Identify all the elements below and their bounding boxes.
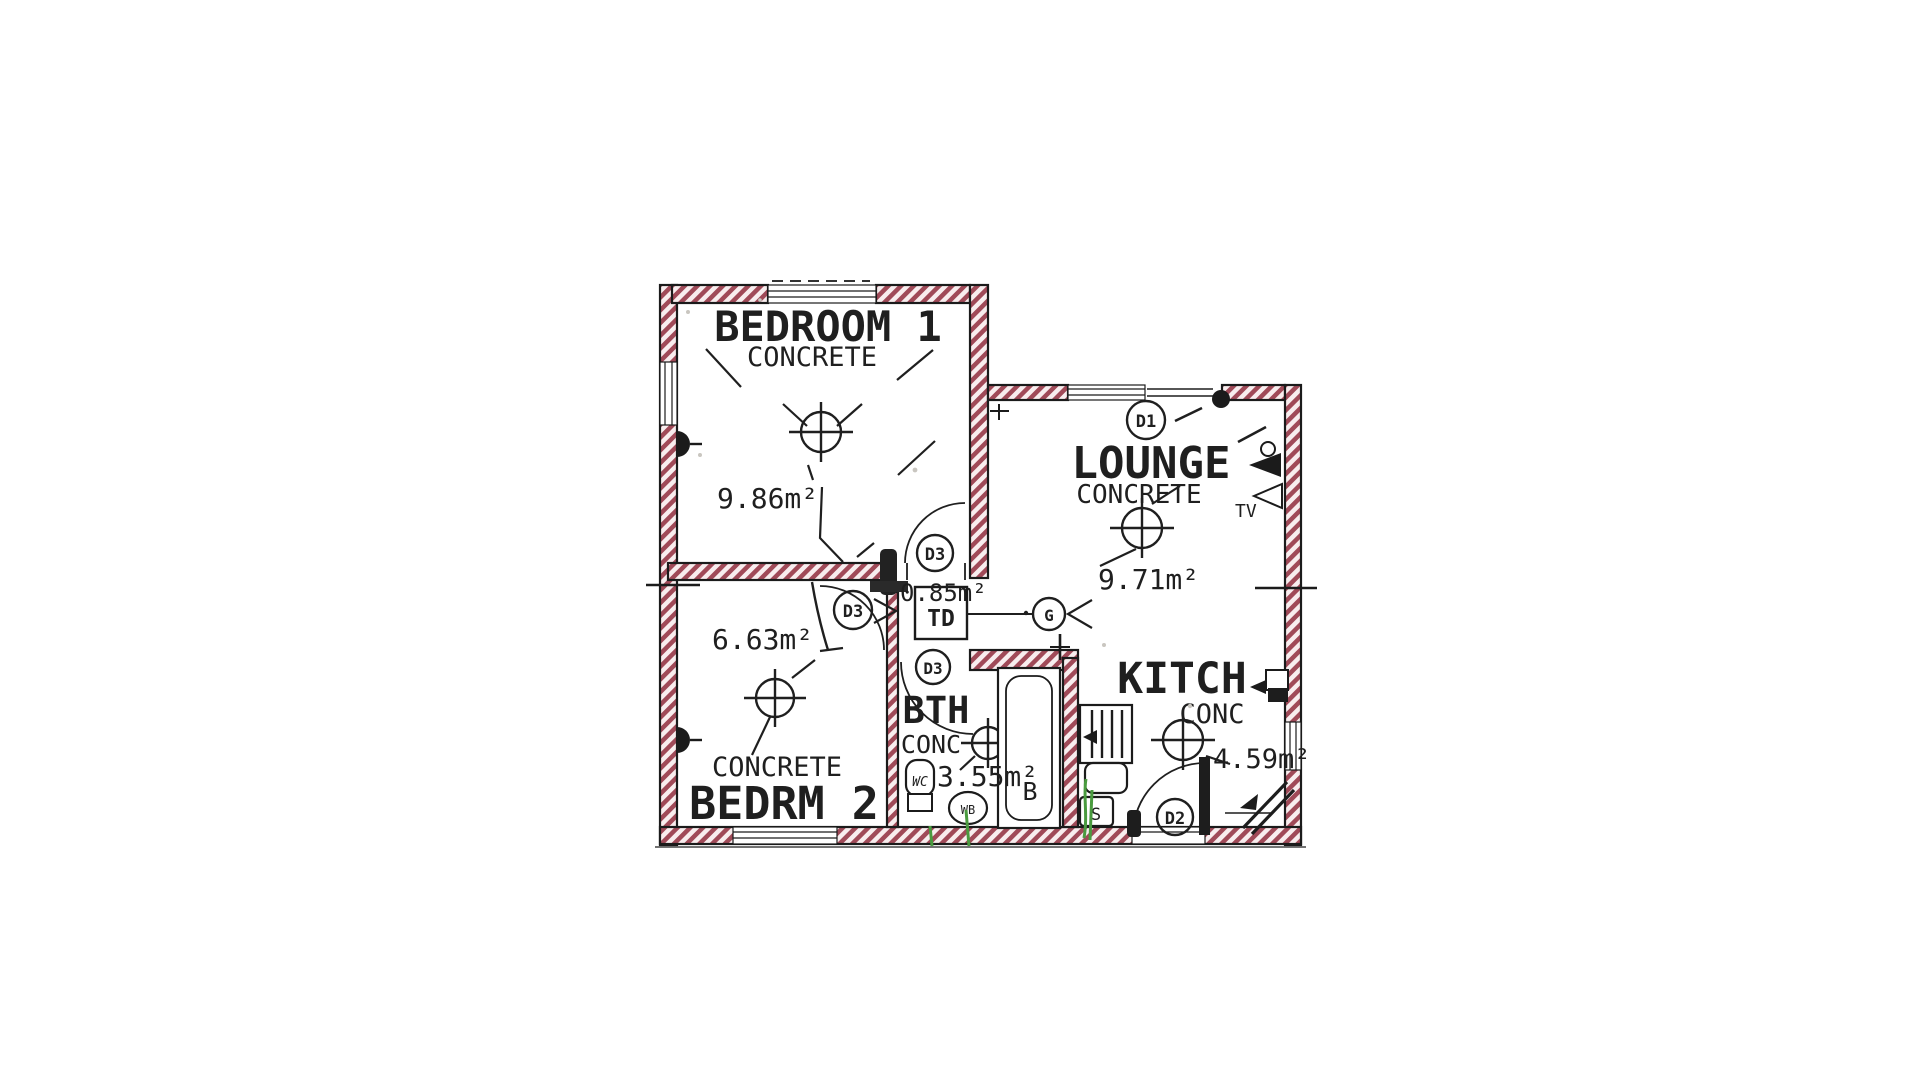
switch-line-bedroom2 xyxy=(752,717,770,755)
floor-plan-drawing: D1 D3 D3 D3 D2 G TD xyxy=(0,0,1920,1080)
room-label-bedroom2: BEDRM 2 xyxy=(689,777,879,830)
switch-tag-g: G xyxy=(1033,598,1092,630)
tv-point: TV xyxy=(1235,484,1282,522)
leader-bedroom1-v1 xyxy=(783,404,807,426)
leader-bedroom1-v2 xyxy=(837,404,862,426)
floor-label-lounge: CONCRETE xyxy=(1076,480,1201,510)
kitchen-basin xyxy=(1085,763,1127,793)
td-line-dot xyxy=(1024,611,1028,615)
kitchen-wall-unit xyxy=(1250,670,1288,702)
wash-basin-label: WB xyxy=(961,803,975,817)
door-d2-jamb xyxy=(1127,810,1141,837)
switch-line-bedroom1-dash xyxy=(808,465,813,480)
floor-label-kitchen: CONC xyxy=(1179,699,1244,730)
window-lounge-top xyxy=(1068,385,1145,400)
window-bedroom1-left xyxy=(660,362,677,425)
leader-bedroom1-right xyxy=(897,350,933,380)
stove-unit xyxy=(1080,705,1132,763)
switch-tag-g-label: G xyxy=(1044,606,1054,625)
lounge-wall-fixtures: TV xyxy=(1235,442,1282,522)
scanned-floor-plan-page: D1 D3 D3 D3 D2 G TD xyxy=(0,0,1920,1080)
leader-bedroom2-dash1 xyxy=(792,660,815,678)
area-label-bathroom: 3.55m² xyxy=(937,760,1038,793)
door-tag-d3-bedroom1: D3 xyxy=(917,535,953,571)
door-tag-d2-label: D2 xyxy=(1165,809,1185,829)
socket-bedroom2 xyxy=(677,727,690,753)
bathtub: B xyxy=(998,668,1060,828)
wall-bedroom2-right xyxy=(887,592,898,827)
switch-tag-g-pointer xyxy=(1068,600,1092,628)
wall-lounge-top-right xyxy=(1222,385,1285,400)
green-mark-bath-door xyxy=(930,826,932,846)
door-tag-d1: D1 xyxy=(1127,401,1165,439)
switch-line-bedroom1-tick xyxy=(857,543,874,557)
room-label-bathroom: BTH xyxy=(903,689,970,732)
room-label-kitchen: KITCH xyxy=(1117,654,1246,704)
door-tag-d3-bedroom2-label: D3 xyxy=(843,602,863,622)
wall-right xyxy=(1285,385,1301,845)
door-d1-hinge xyxy=(1212,390,1230,408)
wall-step-bedroom1-lounge xyxy=(970,285,988,578)
area-label-lounge: 9.71m² xyxy=(1098,563,1199,596)
window-bedroom1-top xyxy=(768,285,876,303)
green-mark-kitchen-1 xyxy=(1084,779,1086,838)
leader-bedroom1-left xyxy=(706,349,741,387)
switch-line-bedroom1 xyxy=(820,487,843,562)
door-tag-d3-bedroom1-label: D3 xyxy=(925,545,945,565)
tumble-dryer-label: TD xyxy=(927,606,955,632)
area-label-lobby: 0.85m² xyxy=(900,579,987,607)
door-d1-swing-dash-2 xyxy=(1238,427,1266,442)
wall-sockets xyxy=(677,431,702,753)
toilet-label: WC xyxy=(912,775,928,790)
door-d2-leaf xyxy=(1199,757,1210,835)
wall-kitchen-divider xyxy=(1063,658,1078,827)
wall-top-bedroom1-left xyxy=(672,285,768,303)
floor-label-bedroom1: CONCRETE xyxy=(747,342,877,373)
leader-bedroom2-dash2 xyxy=(820,648,843,651)
light-bedroom2 xyxy=(744,669,806,727)
area-label-bedroom2: 6.63m² xyxy=(712,623,813,656)
door-d1 xyxy=(1147,389,1213,396)
tv-label: TV xyxy=(1235,501,1257,522)
socket-bedroom1 xyxy=(677,431,690,457)
door-tag-d3-bathroom: D3 xyxy=(916,650,950,684)
area-label-kitchen: 4.59m² xyxy=(1213,744,1311,775)
kitchen-corner-arrow xyxy=(1240,794,1258,810)
light-bedroom1 xyxy=(789,402,853,462)
wall-lounge-top-left xyxy=(988,385,1068,400)
area-label-bedroom1: 9.86m² xyxy=(717,482,818,515)
wall-sconce-lounge xyxy=(1249,453,1281,477)
wall-bedroom-divider xyxy=(668,563,895,580)
green-mark-kitchen-2 xyxy=(1090,790,1092,840)
door-bedroom1 xyxy=(905,503,965,580)
door-d1-swing-dash-1 xyxy=(1175,408,1202,421)
kitchen-wall-unit-arrow xyxy=(1250,680,1266,694)
wall-top-bedroom1-right xyxy=(876,285,970,303)
toilet: WC xyxy=(906,760,934,811)
door-tag-d3-bathroom-label: D3 xyxy=(923,659,942,678)
door-tag-d1-label: D1 xyxy=(1136,412,1156,432)
floor-label-bathroom: CONC xyxy=(901,730,961,759)
wall-sconce-lounge-dot xyxy=(1261,442,1275,456)
